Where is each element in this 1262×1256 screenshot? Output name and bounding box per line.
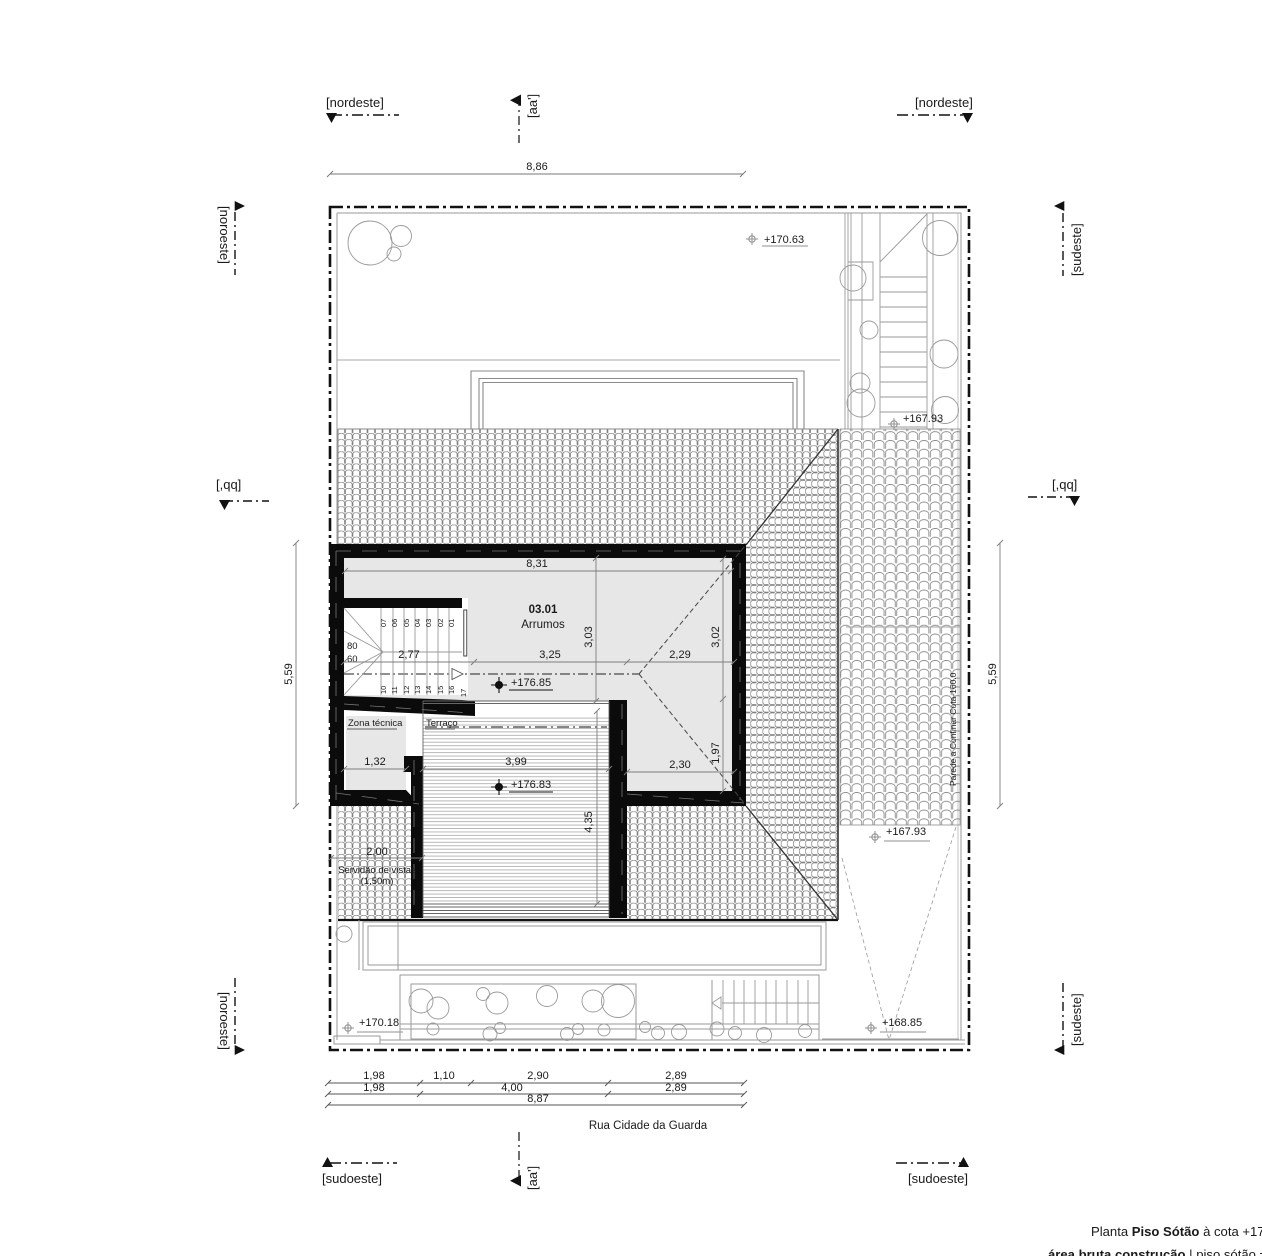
svg-text:1,32: 1,32: [364, 756, 385, 768]
svg-text:[sudoeste]: [sudoeste]: [322, 1171, 382, 1186]
svg-text:+167.93: +167.93: [886, 826, 926, 838]
svg-text:2,89: 2,89: [665, 1070, 686, 1082]
svg-text:Zona técnica: Zona técnica: [348, 718, 403, 729]
svg-text:1,98: 1,98: [363, 1070, 384, 1082]
svg-text:01: 01: [447, 619, 456, 627]
svg-text:60: 60: [347, 654, 358, 665]
svg-text:03: 03: [424, 619, 433, 627]
svg-text:3,02: 3,02: [710, 626, 722, 647]
svg-text:3,99: 3,99: [505, 756, 526, 768]
svg-text:05: 05: [402, 619, 411, 627]
svg-text:11: 11: [390, 686, 399, 694]
svg-text:12: 12: [402, 686, 411, 694]
svg-text:2,00: 2,00: [366, 846, 387, 858]
svg-text:Planta Piso Sótão à cota +178: Planta Piso Sótão à cota +178: [1091, 1224, 1262, 1239]
svg-text:4,00: 4,00: [501, 1082, 522, 1094]
svg-text:4,35: 4,35: [583, 811, 595, 832]
svg-text:02: 02: [436, 619, 445, 627]
svg-text:80: 80: [347, 641, 358, 652]
svg-text:2,90: 2,90: [527, 1070, 548, 1082]
svg-text:14: 14: [424, 686, 433, 694]
svg-text:+170.18: +170.18: [359, 1017, 399, 1029]
svg-text:13: 13: [413, 686, 422, 694]
svg-text:03.01: 03.01: [529, 604, 558, 616]
svg-text:[sudeste]: [sudeste]: [1069, 223, 1084, 276]
svg-text:3,25: 3,25: [539, 649, 560, 661]
svg-text:04: 04: [413, 619, 422, 627]
svg-text:(1,50m): (1,50m): [361, 876, 394, 887]
svg-text:3,03: 3,03: [583, 626, 595, 647]
svg-text:Servidão de vistas: Servidão de vistas: [338, 865, 416, 876]
svg-text:2,89: 2,89: [665, 1082, 686, 1094]
svg-text:17: 17: [459, 689, 468, 697]
svg-text:[noroeste]: [noroeste]: [217, 206, 232, 264]
svg-text:10: 10: [379, 686, 388, 694]
svg-text:8,31: 8,31: [526, 558, 547, 570]
svg-text:[aa']: [aa']: [525, 1166, 540, 1190]
svg-text:+176.83: +176.83: [511, 779, 551, 791]
svg-text:06: 06: [390, 619, 399, 627]
svg-text:[noroeste]: [noroeste]: [217, 992, 232, 1050]
svg-text:8,87: 8,87: [527, 1093, 548, 1105]
svg-text:[nordeste]: [nordeste]: [915, 95, 973, 110]
svg-text:+168.85: +168.85: [882, 1017, 922, 1029]
svg-text:Parede a Confinar Cota-160.0: Parede a Confinar Cota-160.0: [948, 672, 958, 786]
svg-text:5,59: 5,59: [283, 663, 295, 684]
svg-text:2,30: 2,30: [669, 759, 690, 771]
svg-text:+176.85: +176.85: [511, 677, 551, 689]
svg-text:Arrumos: Arrumos: [521, 619, 565, 631]
svg-text:15: 15: [436, 686, 445, 694]
svg-text:2,77: 2,77: [398, 649, 419, 661]
svg-text:[aa']: [aa']: [525, 94, 540, 118]
svg-text:5,59: 5,59: [987, 663, 999, 684]
svg-text:8,86: 8,86: [526, 161, 547, 173]
svg-text:área bruta construção | piso s: área bruta construção | piso sótão = 031: [1048, 1247, 1262, 1256]
svg-text:2,29: 2,29: [669, 649, 690, 661]
svg-text:1,97: 1,97: [710, 742, 722, 763]
svg-text:1,10: 1,10: [433, 1070, 454, 1082]
svg-text:Terraço: Terraço: [426, 718, 458, 729]
svg-text:[sudoeste]: [sudoeste]: [908, 1171, 968, 1186]
svg-text:07: 07: [379, 619, 388, 627]
svg-text:[sudeste]: [sudeste]: [1069, 993, 1084, 1046]
svg-text:+170.63: +170.63: [764, 234, 804, 246]
svg-text:1,98: 1,98: [363, 1082, 384, 1094]
svg-text:[nordeste]: [nordeste]: [326, 95, 384, 110]
svg-text:[,qq]: [,qq]: [216, 477, 241, 492]
svg-text:16: 16: [447, 686, 456, 694]
svg-text:+167.93: +167.93: [903, 413, 943, 425]
svg-text:Rua Cidade da Guarda: Rua Cidade da Guarda: [589, 1120, 708, 1132]
svg-text:[,qq]: [,qq]: [1052, 477, 1077, 492]
